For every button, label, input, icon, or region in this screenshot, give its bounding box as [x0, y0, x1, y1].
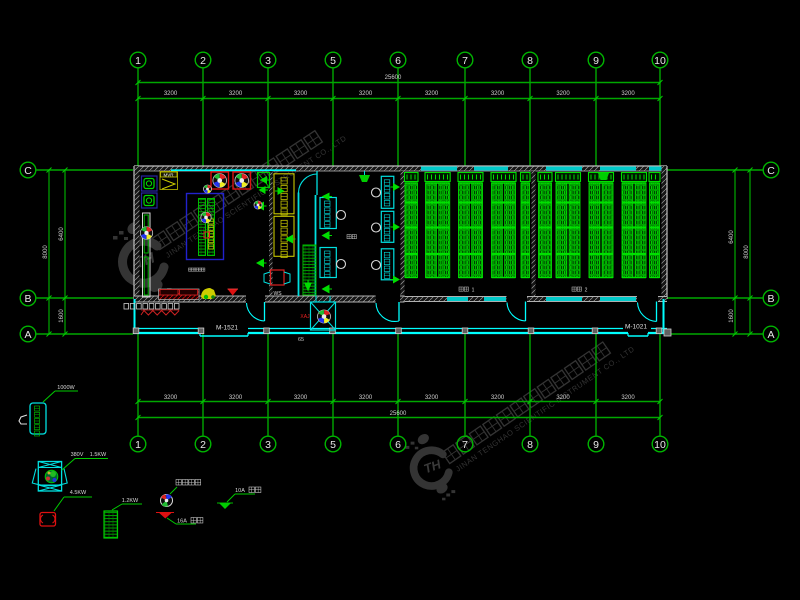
- svg-text:7: 7: [462, 55, 468, 67]
- svg-text:65: 65: [298, 337, 304, 343]
- svg-text:3200: 3200: [294, 395, 308, 401]
- svg-text:1000W: 1000W: [57, 385, 75, 391]
- svg-text:10A: 10A: [235, 488, 245, 494]
- svg-text:3200: 3200: [164, 91, 178, 97]
- svg-text:8000: 8000: [744, 245, 750, 259]
- svg-text:1.2KW: 1.2KW: [122, 498, 139, 504]
- svg-text:1: 1: [135, 55, 141, 67]
- svg-text:6400: 6400: [59, 227, 65, 241]
- svg-text:B: B: [24, 293, 31, 305]
- svg-text:9: 9: [593, 439, 599, 451]
- svg-text:XAJ: XAJ: [300, 314, 310, 320]
- svg-text:WS: WS: [273, 291, 282, 297]
- svg-text:3200: 3200: [229, 91, 243, 97]
- svg-text:10: 10: [654, 439, 666, 451]
- svg-text:3: 3: [265, 439, 271, 451]
- svg-text:5: 5: [330, 55, 336, 67]
- svg-text:3200: 3200: [491, 91, 505, 97]
- svg-text:1.5KW: 1.5KW: [90, 452, 107, 458]
- svg-text:10: 10: [654, 55, 666, 67]
- svg-text:9: 9: [593, 55, 599, 67]
- svg-text:MVR: MVR: [164, 173, 175, 178]
- svg-text:C: C: [767, 165, 775, 177]
- svg-text:5: 5: [330, 439, 336, 451]
- svg-text:A: A: [24, 329, 31, 341]
- svg-text:25600: 25600: [385, 75, 402, 81]
- svg-text:M-1021: M-1021: [625, 324, 647, 331]
- svg-text:3200: 3200: [491, 395, 505, 401]
- svg-text:3200: 3200: [359, 395, 373, 401]
- svg-text:3200: 3200: [229, 395, 243, 401]
- svg-text:A: A: [767, 329, 774, 341]
- svg-text:2: 2: [585, 288, 588, 294]
- svg-text:6: 6: [395, 55, 401, 67]
- svg-text:B: B: [767, 293, 774, 305]
- svg-text:3200: 3200: [359, 91, 373, 97]
- svg-text:8: 8: [527, 55, 533, 67]
- svg-text:3200: 3200: [556, 395, 570, 401]
- svg-text:4.5KW: 4.5KW: [70, 490, 87, 496]
- svg-text:8: 8: [527, 439, 533, 451]
- svg-text:1600: 1600: [729, 309, 735, 323]
- svg-text:1: 1: [135, 439, 141, 451]
- svg-text:C: C: [24, 165, 32, 177]
- svg-text:3200: 3200: [294, 91, 308, 97]
- svg-text:380V: 380V: [71, 452, 84, 458]
- svg-text:3200: 3200: [425, 91, 439, 97]
- svg-text:8000: 8000: [43, 245, 49, 259]
- svg-text:16A: 16A: [177, 519, 187, 525]
- svg-text:M-1521: M-1521: [216, 325, 238, 332]
- svg-text:3: 3: [265, 55, 271, 67]
- svg-text:1600: 1600: [59, 309, 65, 323]
- svg-text:3200: 3200: [621, 395, 635, 401]
- svg-text:6: 6: [395, 439, 401, 451]
- svg-text:3200: 3200: [164, 395, 178, 401]
- svg-text:25600: 25600: [390, 411, 407, 417]
- svg-text:3200: 3200: [556, 91, 570, 97]
- svg-text:1: 1: [472, 288, 475, 294]
- svg-text:6400: 6400: [729, 230, 735, 244]
- svg-text:3200: 3200: [621, 91, 635, 97]
- svg-text:7: 7: [462, 439, 468, 451]
- svg-text:3200: 3200: [425, 395, 439, 401]
- svg-text:2: 2: [200, 55, 206, 67]
- svg-text:2: 2: [200, 439, 206, 451]
